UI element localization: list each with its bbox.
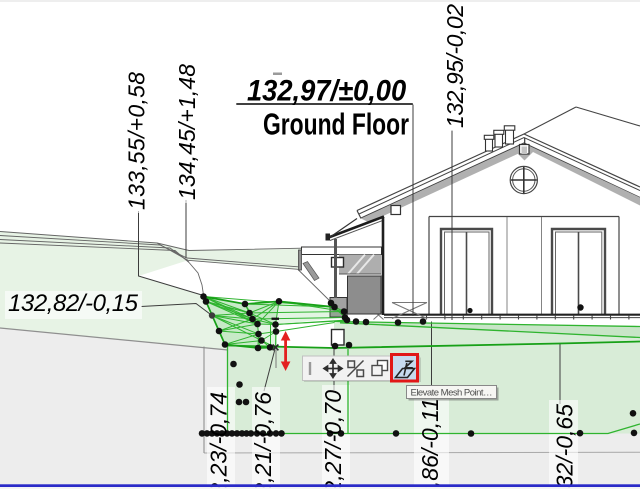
svg-text:Ground Floor: Ground Floor bbox=[263, 107, 409, 141]
svg-text:133,55/+0,58: 133,55/+0,58 bbox=[124, 72, 150, 210]
svg-text:134,45/+1,48: 134,45/+1,48 bbox=[174, 64, 200, 200]
svg-text:132,23/-0,74: 132,23/-0,74 bbox=[206, 392, 232, 489]
svg-text:132,21/-0,76: 132,21/-0,76 bbox=[250, 392, 276, 489]
svg-text:132,97/±0,00: 132,97/±0,00 bbox=[247, 74, 406, 107]
svg-text:132,27/-0,70: 132,27/-0,70 bbox=[320, 390, 346, 489]
svg-text:132,82/-0,15: 132,82/-0,15 bbox=[8, 290, 139, 317]
svg-text:132,95/-0,02: 132,95/-0,02 bbox=[442, 4, 468, 128]
svg-text:132,32/-0,65: 132,32/-0,65 bbox=[552, 404, 578, 489]
svg-text:Elevate Mesh Point…: Elevate Mesh Point… bbox=[411, 387, 493, 398]
svg-text:132,86/-0,11: 132,86/-0,11 bbox=[417, 398, 443, 489]
